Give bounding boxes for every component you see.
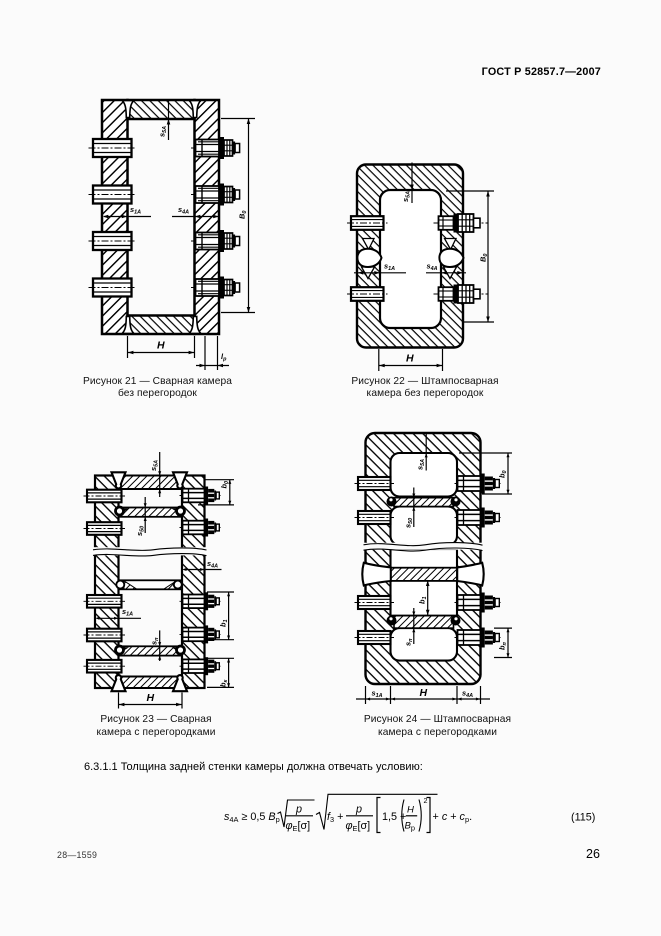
svg-text:Bр: Bр xyxy=(405,821,416,833)
svg-text:+ c + cр.: + c + cр. xyxy=(433,811,473,824)
svg-text:1,5 +: 1,5 + xyxy=(382,811,406,823)
svg-text:H: H xyxy=(147,692,155,704)
svg-text:s4А: s4А xyxy=(462,689,473,700)
svg-text:H: H xyxy=(157,340,165,352)
svg-text:B0: B0 xyxy=(479,254,490,262)
svg-text:b0: b0 xyxy=(220,481,231,489)
svg-text:(115): (115) xyxy=(571,812,595,824)
svg-text:s50: s50 xyxy=(135,526,146,536)
svg-text:H: H xyxy=(420,687,428,699)
svg-text:b1: b1 xyxy=(218,619,229,627)
svg-text:b0: b0 xyxy=(498,470,509,478)
svg-text:bп: bп xyxy=(498,641,509,650)
svg-text:s4А: s4А xyxy=(207,559,218,570)
svg-text:p: p xyxy=(295,804,302,816)
svg-text:f3 +: f3 + xyxy=(327,811,343,824)
svg-text:lр: lр xyxy=(221,352,227,363)
svg-text:sп: sп xyxy=(149,637,160,645)
svg-text:H: H xyxy=(407,805,414,816)
svg-text:B0: B0 xyxy=(238,211,249,219)
svg-text:p: p xyxy=(355,804,362,816)
svg-text:s1А: s1А xyxy=(122,607,133,618)
svg-text:φЕ[σ]: φЕ[σ] xyxy=(286,820,311,833)
svg-text:s1А: s1А xyxy=(130,205,141,216)
svg-text:s5А: s5А xyxy=(158,126,169,137)
svg-text:bк: bк xyxy=(218,679,229,687)
svg-text:H: H xyxy=(406,353,414,365)
svg-text:s4А: s4А xyxy=(178,205,189,216)
svg-text:φЕ[σ]: φЕ[σ] xyxy=(346,820,371,833)
svg-text:s5А: s5А xyxy=(149,460,160,471)
svg-text:s1А: s1А xyxy=(372,689,383,700)
svg-text:s4А ≥ 0,5 Bр: s4А ≥ 0,5 Bр xyxy=(224,811,280,824)
